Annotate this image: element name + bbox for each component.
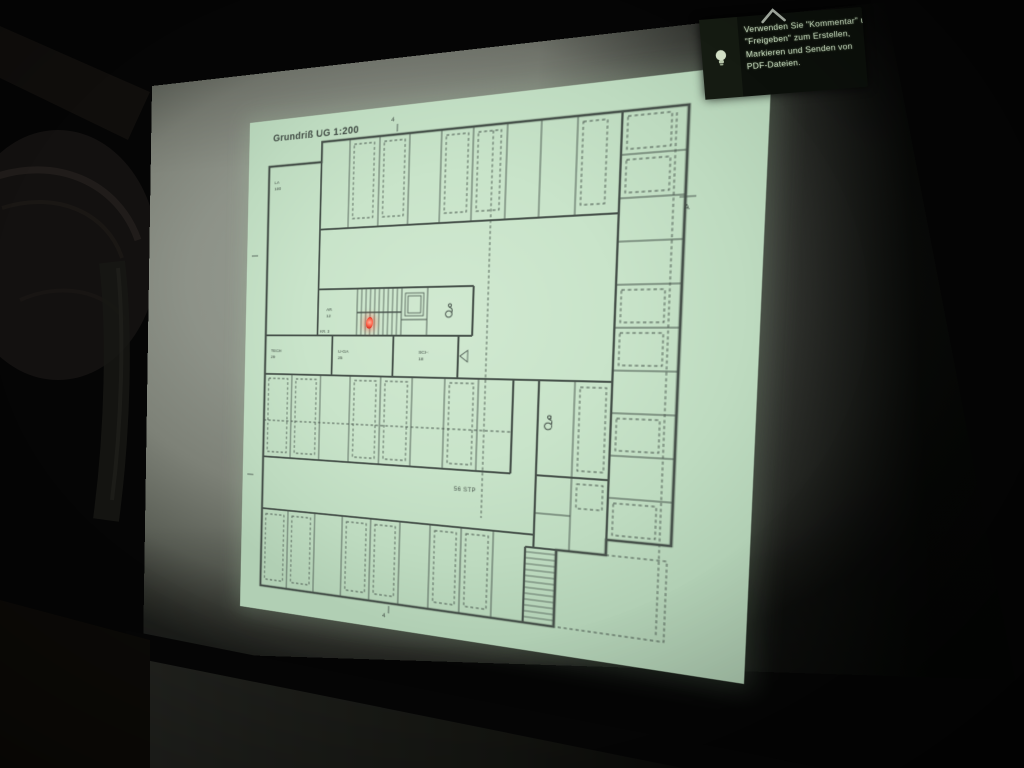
axis-marker-bottom: 4 [382,612,386,619]
section-marker-a: A [684,204,690,213]
projection-room-photo: Grundriß UG 1:200 LA 100 AB 12 KR. 3 TEC… [0,0,1024,768]
floor-plan-drawing: Grundriß UG 1:200 LA 100 AB 12 KR. 3 TEC… [240,62,772,684]
elevator-shaft [405,293,424,316]
svg-text:100: 100 [274,185,282,191]
dashed-lines [260,110,685,642]
room-label-uga: U-GA [338,348,349,354]
room-label-sch: SCH [418,349,428,355]
chevron-up-icon [756,2,792,27]
building-outline [260,105,689,643]
svg-text:18: 18 [418,356,424,362]
plan-title: Grundriß UG 1:200 [273,123,359,144]
room-label-tech: TECH [271,348,282,354]
door-symbol [460,350,468,362]
room-label-kr: KR. 3 [320,329,330,334]
room-label-ab: AB [326,306,332,312]
svg-text:25: 25 [338,355,344,361]
room-label-la: LA [275,179,280,185]
wall-below-screen [126,656,692,768]
lightbulb-icon [699,17,743,100]
curtain-fold [106,262,117,520]
svg-text:29: 29 [271,354,276,360]
floor-corner [0,600,150,768]
wheelchair-icon [544,415,552,429]
pdf-page: Grundriß UG 1:200 LA 100 AB 12 KR. 3 TEC… [240,62,772,684]
wheelchair-icon [445,304,452,318]
ventilation-duct [0,26,158,520]
interior-walls [260,111,622,633]
axis-marker-top: 4 [391,116,395,124]
staircase-bottom-right [524,552,555,621]
staircase-middle [356,289,402,335]
stall-dividers [286,105,689,643]
parking-count-label: 56 STP [454,486,476,495]
svg-text:12: 12 [326,313,331,319]
